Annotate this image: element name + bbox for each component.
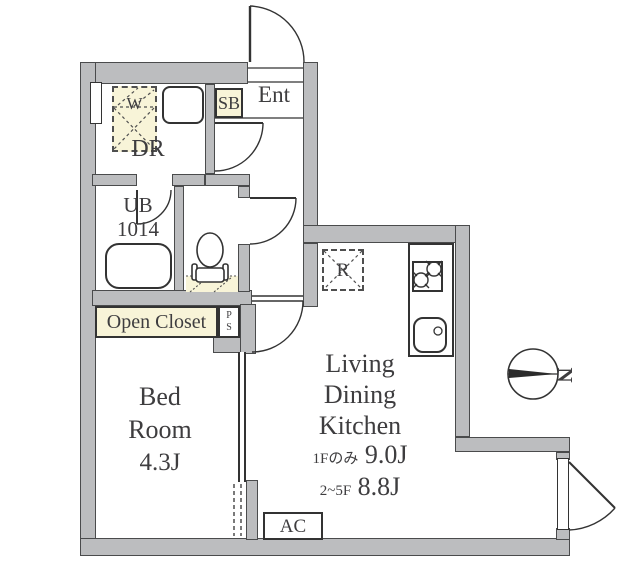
bedroom-name-line1: Bed (90, 380, 230, 413)
wall-band-mid (92, 290, 252, 306)
wall-bed-ldk-lower (246, 480, 258, 540)
wall-dr-hall-band (205, 174, 250, 186)
pipe-space-letter-p: P (220, 310, 238, 322)
ldk-name-line2: Dining (285, 379, 435, 410)
unit-bath-label: UB 1014 (98, 193, 178, 241)
dressing-room-label: DR (118, 136, 178, 164)
open-closet-label: Open Closet (97, 311, 216, 334)
pipe-space-box: P S (218, 306, 240, 338)
open-closet: Open Closet (95, 306, 218, 338)
ldk-size-25f-area: 8.8J (358, 472, 401, 501)
toilet-icon (192, 233, 228, 282)
wall-bed-ldk-thin (238, 352, 246, 482)
toilet-floor-mat (186, 276, 238, 292)
dressing-room-door-arc (215, 123, 263, 171)
shoe-box: SB (215, 88, 243, 118)
floor-plan: SB P S Open Closet AC (0, 0, 640, 577)
left-wall-window (90, 82, 102, 124)
hall-ldk-door-arc (252, 296, 303, 352)
wall-top-left (80, 62, 248, 84)
bathtub (105, 243, 172, 289)
wall-dr-ub-left (92, 174, 137, 186)
wall-bay-top (455, 437, 570, 452)
balcony-door-arc (569, 462, 615, 530)
ldk-size-25f: 2~5F 8.8J (285, 473, 435, 505)
ldk-name-line3: Kitchen (285, 410, 435, 441)
washing-machine-label: W (112, 94, 157, 114)
bedroom-label: Bed Room 4.3J (90, 380, 230, 479)
wall-dr-hall (205, 84, 215, 174)
ldk-size-25f-floors: 2~5F (320, 483, 351, 499)
balcony-window (557, 458, 569, 530)
refrigerator-label: R (322, 260, 364, 282)
air-conditioner-label: AC (265, 516, 321, 538)
bedroom-size: 4.3J (90, 446, 230, 479)
bedroom-name-line2: Room (90, 413, 230, 446)
unit-bath-name: UB (98, 193, 178, 217)
compass-icon (508, 349, 558, 399)
air-conditioner-box: AC (263, 512, 323, 540)
wall-toilet-hall-top (238, 186, 250, 198)
wall-bottom (80, 538, 570, 556)
wall-ldk-right (455, 225, 470, 437)
pipe-space-letter-s: S (220, 322, 238, 334)
bedroom-wall-dashed-lines (234, 484, 241, 536)
wall-toilet-hall-bottom (238, 244, 250, 292)
stove (412, 261, 443, 292)
entrance-door-arc (248, 6, 304, 82)
ldk-size-1f-floors: 1Fのみ (313, 451, 359, 467)
ldk-label: Living Dining Kitchen 1Fのみ 9.0J 2~5F 8.8… (285, 348, 435, 505)
wall-hall-ldk (303, 243, 318, 307)
ldk-size-1f: 1Fのみ 9.0J (285, 441, 435, 473)
washbasin (162, 86, 204, 124)
toilet-door-arc (250, 198, 296, 244)
wall-left (80, 62, 96, 556)
ldk-size-1f-area: 9.0J (365, 440, 408, 469)
unit-bath-size: 1014 (98, 217, 178, 241)
wall-ldk-top (303, 225, 470, 243)
compass-north-label: N (553, 362, 577, 388)
wall-dr-ub-right (172, 174, 205, 186)
pipe-space-label: P S (220, 310, 238, 334)
wall-ps-right (240, 304, 256, 354)
shoe-box-label: SB (217, 93, 241, 114)
wall-entry-right (303, 62, 318, 243)
entrance-label: Ent (244, 82, 304, 108)
ldk-name-line1: Living (285, 348, 435, 379)
wall-ps-under (213, 336, 241, 353)
